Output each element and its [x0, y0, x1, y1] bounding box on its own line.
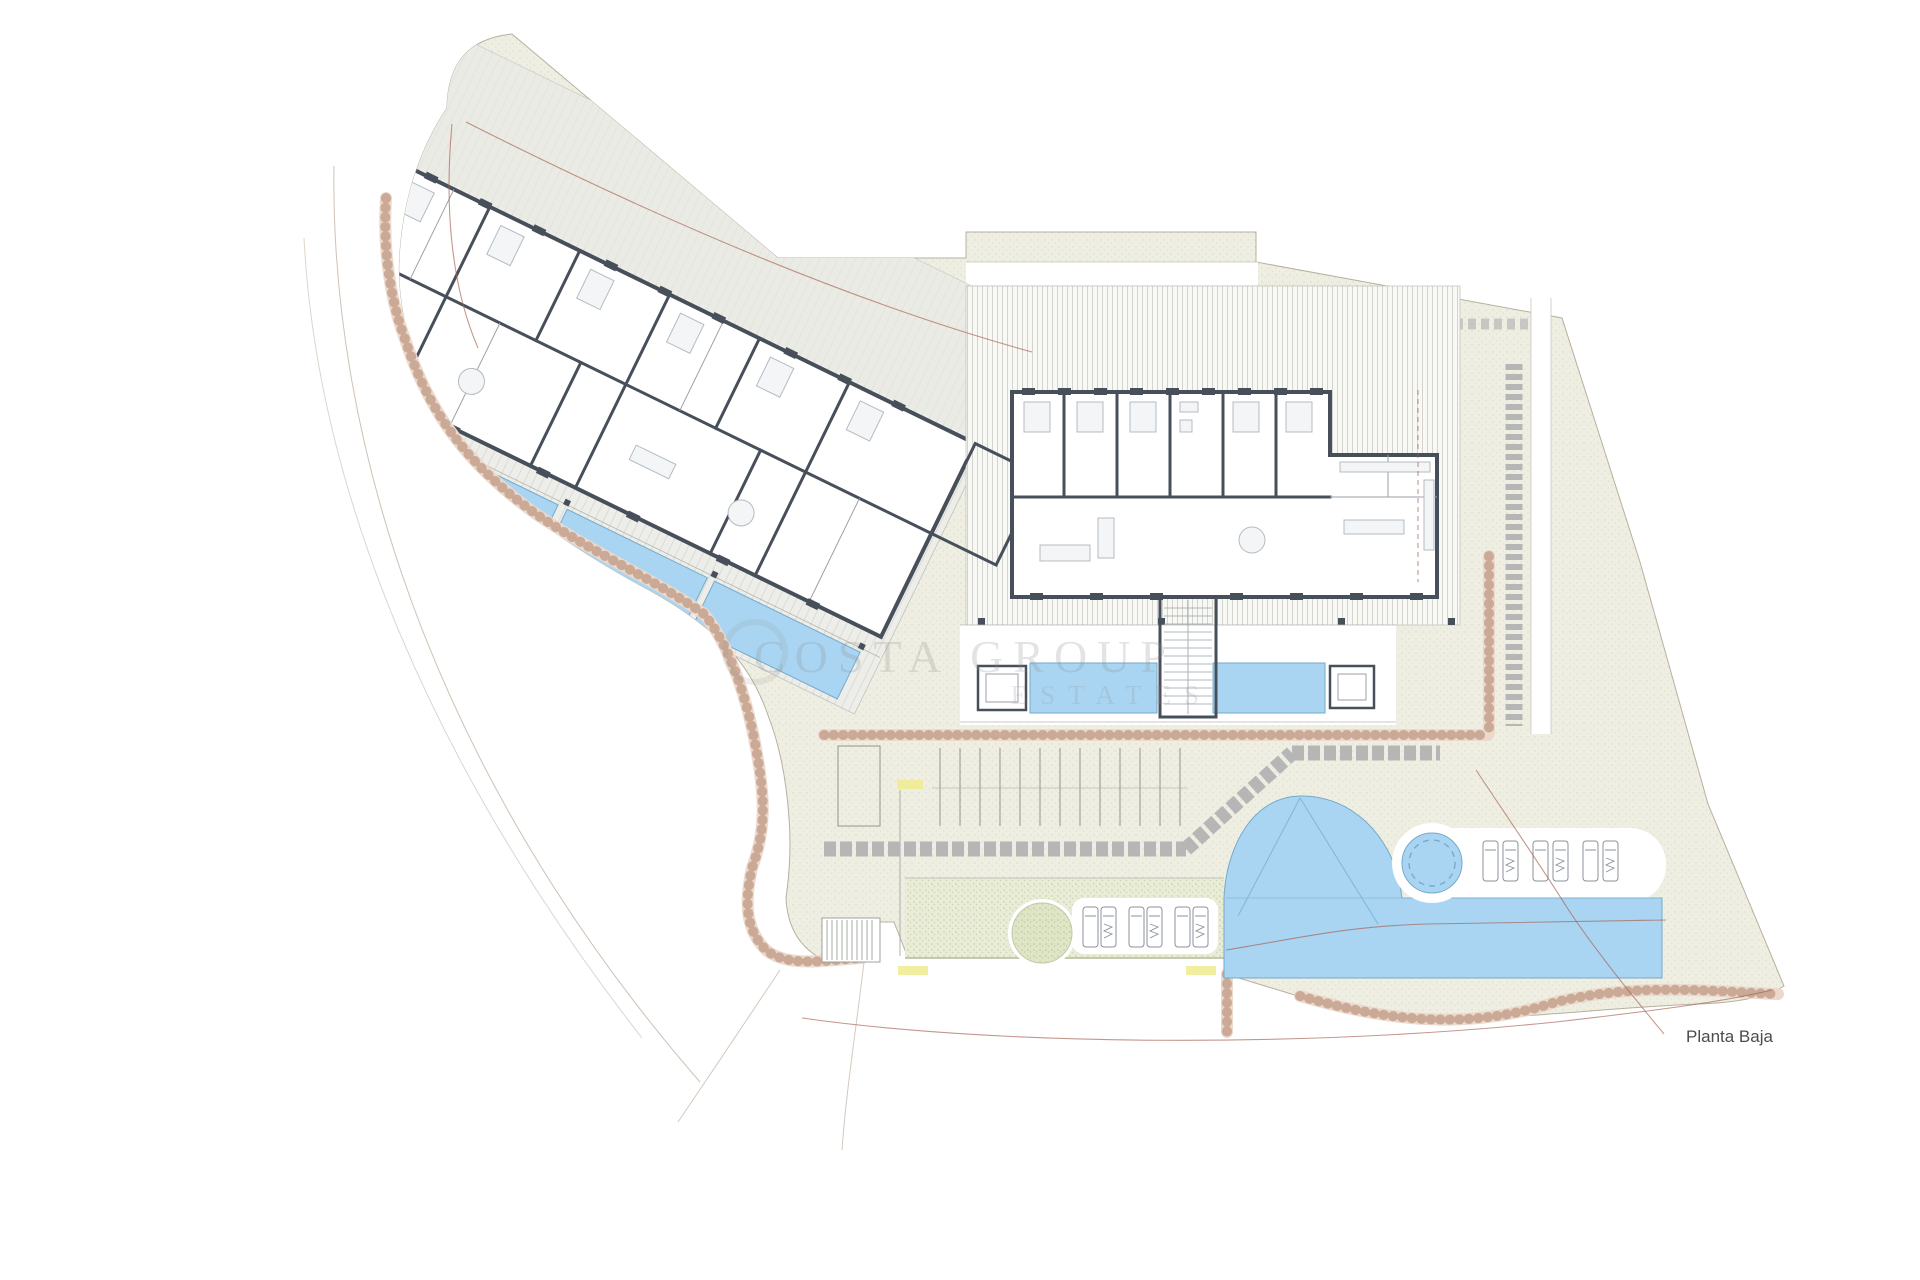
watermark-line2: ESTATES — [1011, 680, 1212, 710]
right-private-pool-2 — [1213, 663, 1325, 713]
right-access-strip — [1531, 298, 1551, 734]
elevation-marker — [898, 966, 928, 975]
stairs-comb — [822, 918, 880, 962]
tree — [1012, 903, 1072, 963]
spa-box-right — [1330, 666, 1374, 708]
elevation-marker — [897, 780, 923, 789]
floor-label: Planta Baja — [1686, 1027, 1773, 1046]
elevation-marker — [1186, 966, 1216, 975]
watermark-line1: COSTA GROUP — [754, 631, 1176, 682]
jacuzzi — [1402, 833, 1462, 893]
site-plan-drawing: COSTA GROUP ESTATES Planta Baja — [0, 0, 1920, 1280]
floor-plan-page: COSTA GROUP ESTATES Planta Baja — [0, 0, 1920, 1280]
